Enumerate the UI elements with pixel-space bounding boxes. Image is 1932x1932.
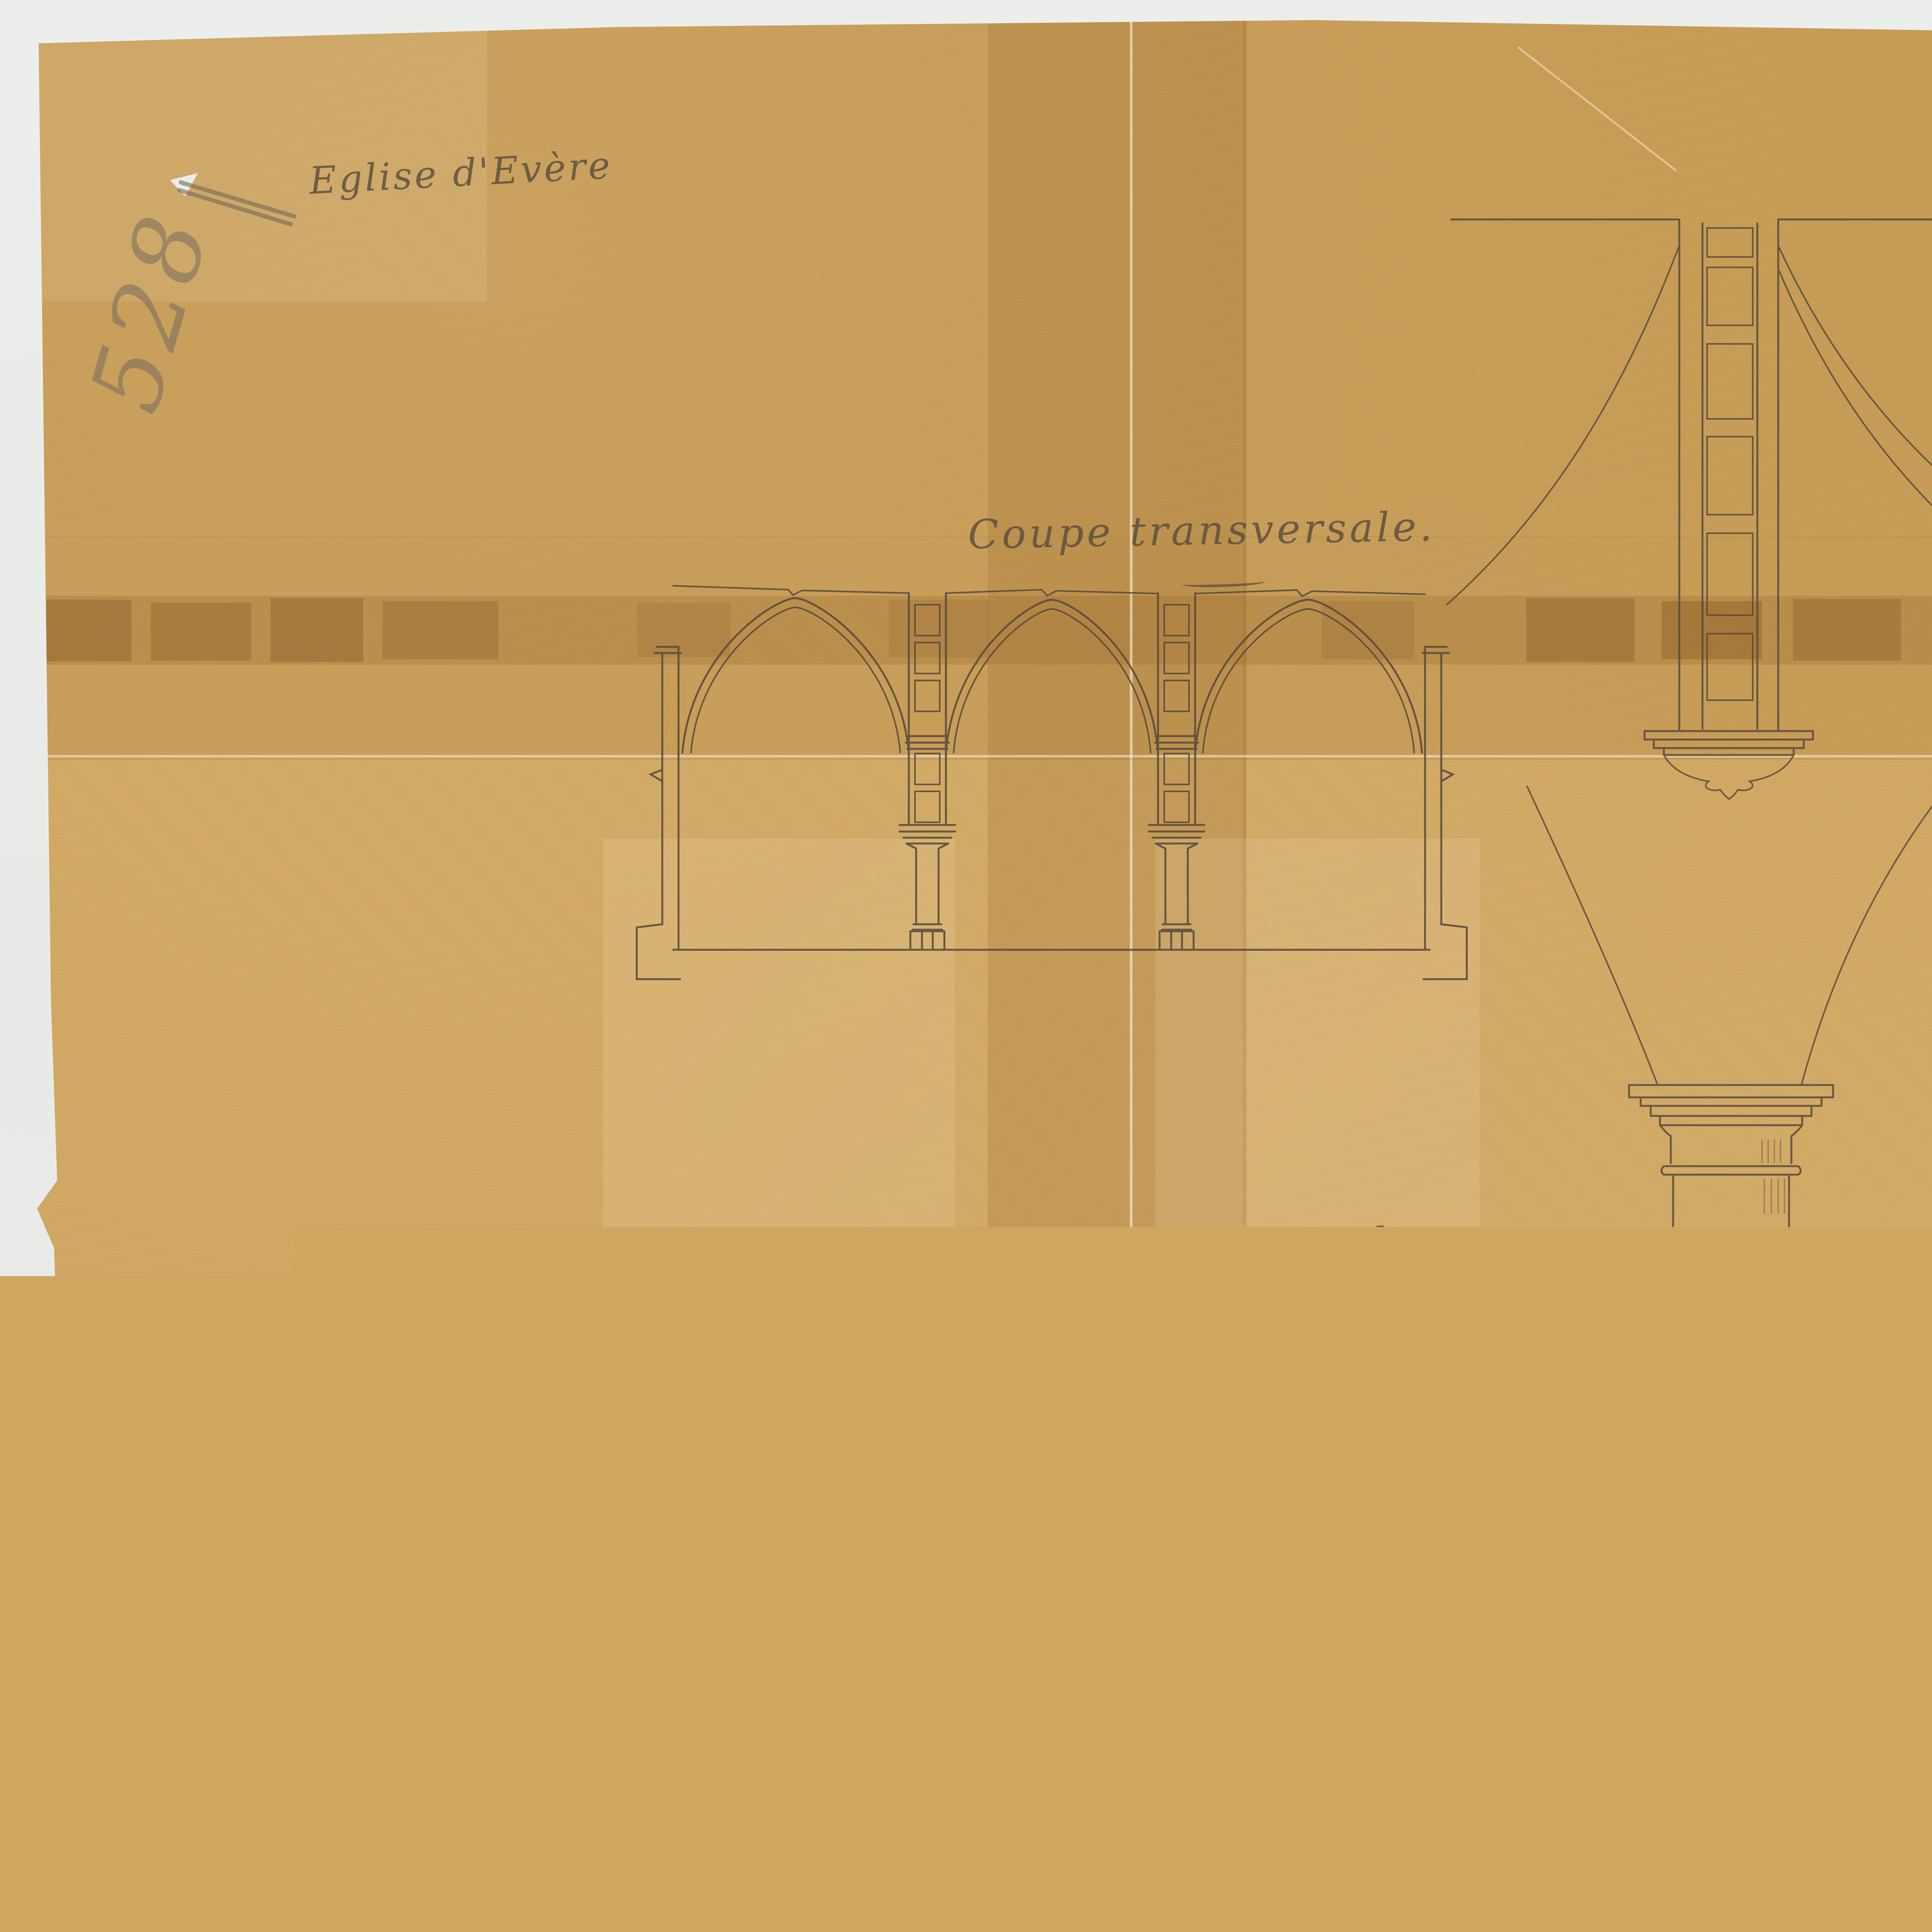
scanner-background: 528 Eglise d'Evère Coupe transversale. C… (0, 0, 1932, 1932)
pencil-inventory-number: 528 (68, 200, 232, 423)
detail-hanging-pier-drawing (1447, 219, 1932, 799)
detail-capital-drawing (1527, 750, 1932, 1279)
longitudinal-baseline (419, 1703, 1688, 1709)
longitudinal-ceiling (419, 1311, 1684, 1315)
transverse-section-drawing (637, 586, 1467, 979)
pencil-marks: 528 (68, 182, 389, 1703)
drawing-linework: 528 (0, 0, 1932, 1932)
transverse-section-label: Coupe transversale. (968, 503, 1435, 558)
pencil-slash (179, 182, 294, 224)
drawing-sheet: 528 Eglise d'Evère Coupe transversale. C… (0, 0, 1932, 1932)
longitudinal-section-drawing (417, 1311, 1688, 1709)
